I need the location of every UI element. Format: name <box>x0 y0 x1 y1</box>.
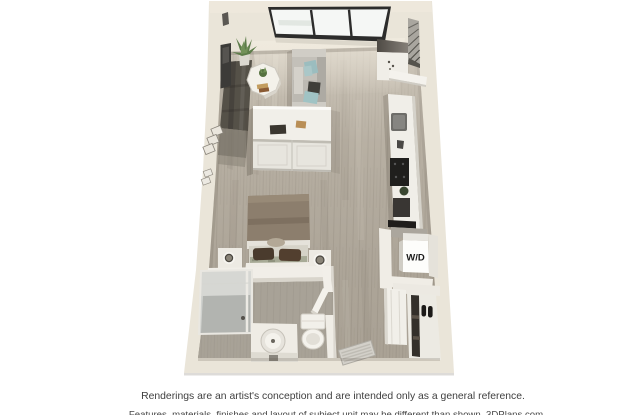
svg-text:Renderings are an artist's con: Renderings are an artist's conception an… <box>141 391 525 402</box>
svg-text:Features, materials, finishes: Features, materials, finishes and layout… <box>129 410 543 415</box>
svg-text:W/D: W/D <box>406 253 425 264</box>
